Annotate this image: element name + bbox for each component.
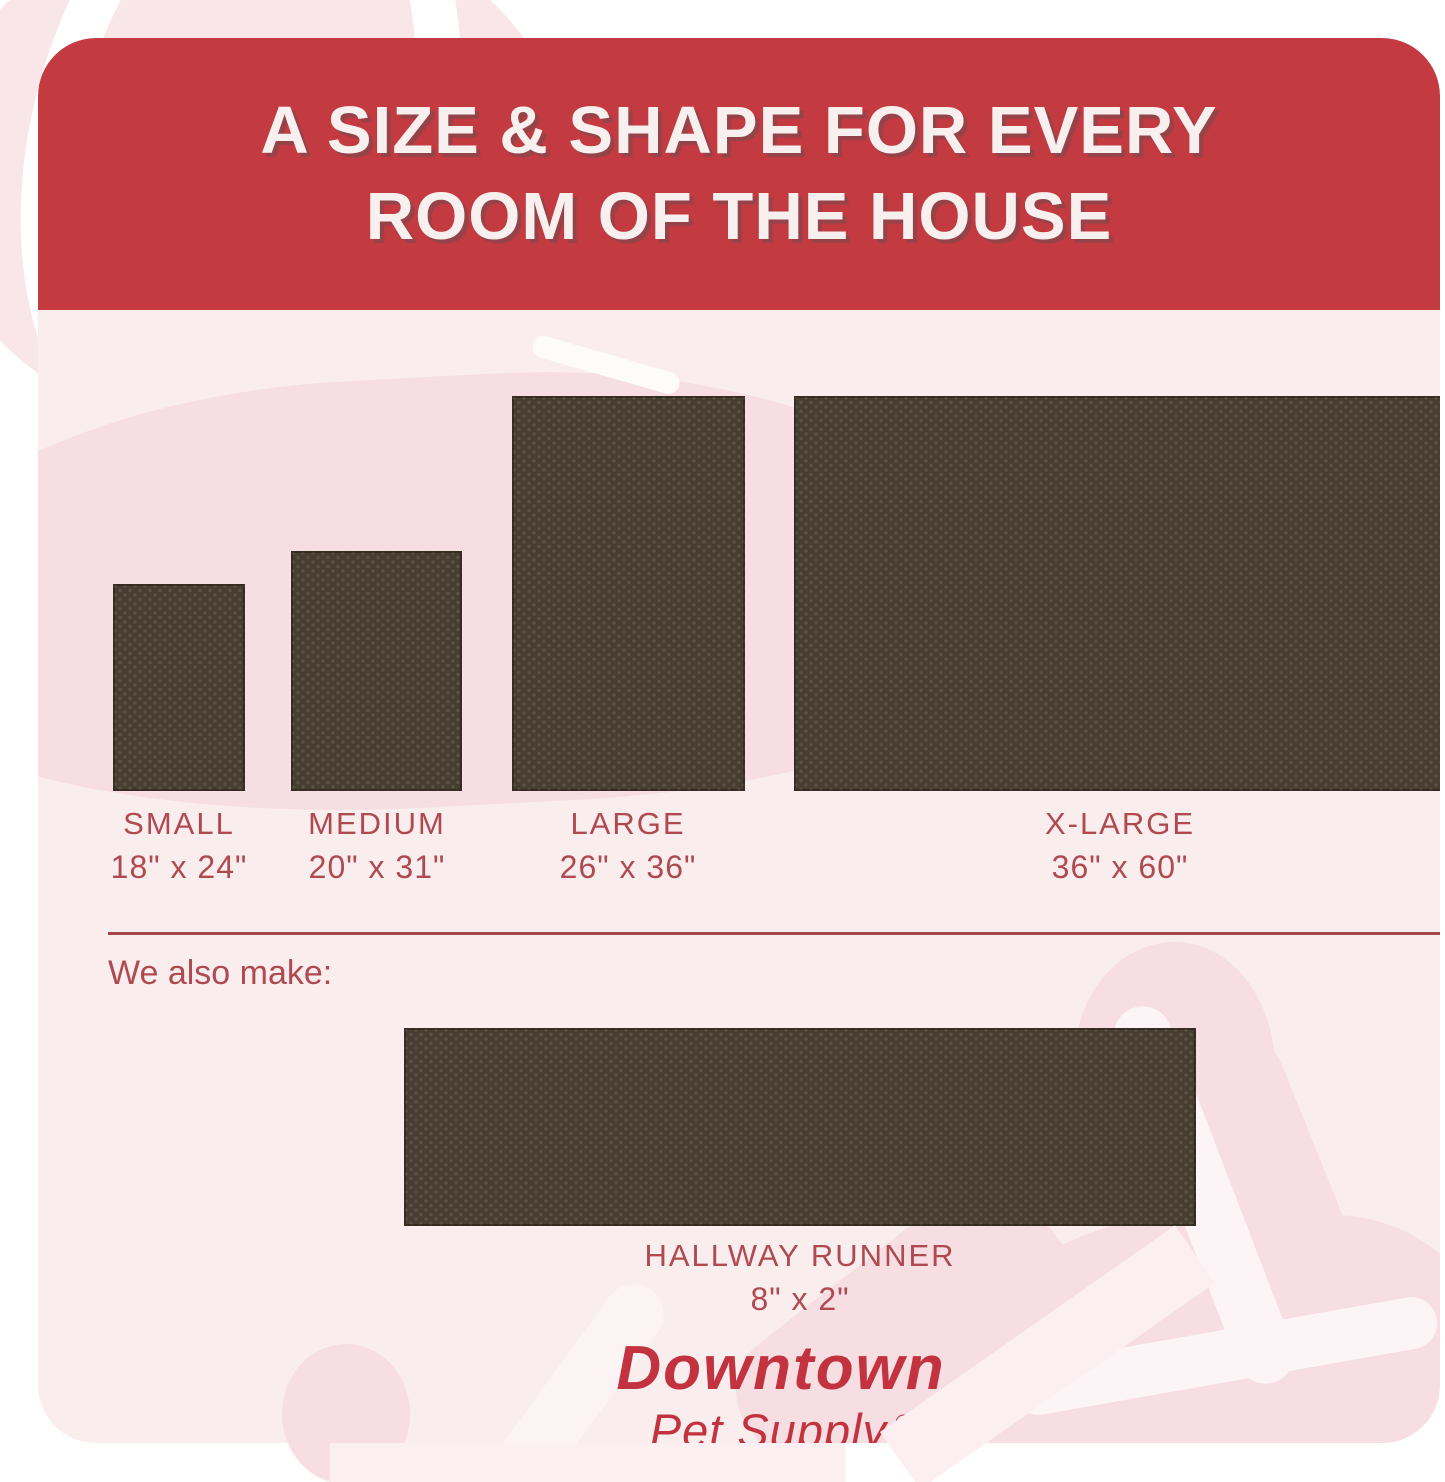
size-name: HALLWAY RUNNER (640, 1238, 960, 1274)
size-dimensions: 36" x 60" (960, 849, 1280, 886)
size-dimensions: 8" x 2" (640, 1281, 960, 1318)
size-name: LARGE (468, 806, 788, 842)
infographic-page: A SIZE & SHAPE FOR EVERY ROOM OF THE HOU… (0, 0, 1445, 1482)
size-label-xlarge: X-LARGE 36" x 60" (960, 806, 1280, 886)
size-name: X-LARGE (960, 806, 1280, 842)
brand-tagline-text: Pet Supply (650, 1404, 887, 1443)
also-make-label: We also make: (108, 954, 332, 993)
mat-medium-swatch (291, 551, 462, 791)
bottom-pale-band-decoration (330, 1443, 845, 1482)
page-title-line-2: ROOM OF THE HOUSE (366, 174, 1113, 260)
section-divider (108, 932, 1440, 935)
page-title-line-1: A SIZE & SHAPE FOR EVERY (260, 88, 1217, 174)
size-label-large: LARGE 26" x 36" (468, 806, 788, 886)
size-dimensions: 26" x 36" (468, 849, 788, 886)
main-panel: A SIZE & SHAPE FOR EVERY ROOM OF THE HOU… (38, 38, 1440, 1443)
mat-hallway-runner-swatch (404, 1028, 1196, 1226)
mat-small-swatch (113, 584, 245, 791)
header-banner: A SIZE & SHAPE FOR EVERY ROOM OF THE HOU… (38, 38, 1440, 310)
size-label-hallway-runner: HALLWAY RUNNER 8" x 2" (640, 1238, 960, 1318)
mat-large-swatch (512, 396, 745, 791)
mat-xlarge-swatch (794, 396, 1440, 791)
